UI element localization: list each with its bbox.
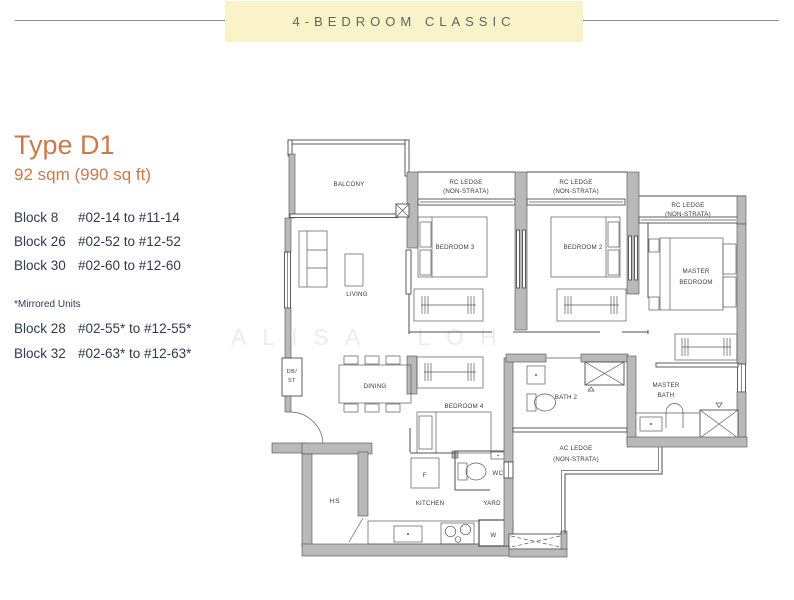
ac-ledge-sublabel: (NON-STRATA) — [553, 456, 599, 463]
bedroom4-label: BEDROOM 4 — [445, 403, 484, 410]
rc-ledge-2: RC LEDGE (NON-STRATA) — [527, 172, 627, 205]
unit-area: 92 sqm (990 sq ft) — [14, 165, 264, 185]
ac-ledge-label: AC LEDGE — [560, 445, 593, 452]
living-area: LIVING — [299, 231, 368, 298]
fridge-label: F — [423, 473, 427, 479]
header-rule-left — [15, 20, 225, 21]
block-name: Block 8 — [14, 206, 78, 230]
block-name: Block 28 — [14, 316, 78, 341]
bedroom2-label: BEDROOM 2 — [564, 244, 603, 251]
wc-room: WC — [452, 451, 507, 490]
toilet-icon — [458, 463, 486, 480]
block-row: Block 32 #02-63* to #12-63* — [14, 341, 264, 366]
mirrored-block-list: Block 28 #02-55* to #12-55* Block 32 #02… — [14, 316, 264, 366]
column-bed2-master — [627, 172, 639, 294]
block-row: Block 8 #02-14 to #11-14 — [14, 206, 264, 230]
unit-type-title: Type D1 — [14, 130, 264, 160]
block-range: #02-55* to #12-55* — [78, 316, 191, 341]
west-wall-entry: DB/ ST — [272, 218, 323, 453]
block-range: #02-60 to #12-60 — [78, 254, 181, 278]
master-bedroom-label: MASTER — [683, 268, 710, 275]
ac-unit-icon — [396, 204, 409, 217]
wardrobe-icon — [557, 289, 626, 321]
block-range: #02-63* to #12-63* — [78, 341, 191, 366]
balcony-room: BALCONY — [288, 140, 418, 248]
rc-ledge-label: RC LEDGE — [449, 179, 482, 186]
block-range: #02-52 to #12-52 — [78, 230, 181, 254]
unit-type-banner: 4-BEDROOM CLASSIC — [225, 1, 583, 42]
block-range: #02-14 to #11-14 — [78, 206, 180, 230]
living-label: LIVING — [346, 291, 368, 298]
balcony-label: BALCONY — [334, 181, 365, 188]
yard-label: YARD — [483, 500, 501, 507]
rc-ledge-sublabel: (NON-STRATA) — [553, 188, 599, 195]
floor-plan: BALCONY RC LEDGE (NON-STRATA) RC LEDGE (… — [270, 128, 760, 570]
sofa-icon — [299, 231, 327, 287]
washer-icon: W — [479, 520, 508, 546]
household-shelter: HS — [302, 443, 372, 548]
ac-ledge: AC LEDGE (NON-STRATA) — [553, 441, 662, 534]
wardrobe-icon — [417, 357, 483, 388]
east-wall — [737, 224, 746, 440]
rc-ledge-sublabel: (NON-STRATA) — [443, 188, 489, 195]
washer-label: W — [490, 533, 496, 539]
toilet-icon — [527, 394, 556, 411]
master-bath-room: MASTER BATH — [627, 363, 747, 447]
bedroom4-room: BEDROOM 4 — [407, 356, 491, 453]
block-name: Block 26 — [14, 230, 78, 254]
rc-ledge-sublabel: (NON-STRATA) — [665, 211, 711, 218]
basin-icon — [527, 366, 545, 384]
db-label: DB/ — [287, 369, 298, 375]
wardrobe-icon — [414, 289, 483, 321]
hs-label: HS — [330, 498, 340, 505]
rc-ledge-label: RC LEDGE — [559, 179, 592, 186]
basin-icon — [640, 417, 662, 431]
shower-icon — [585, 362, 624, 391]
rc-ledge-1: RC LEDGE (NON-STRATA) — [418, 172, 515, 205]
toilet-icon — [666, 404, 683, 429]
kitchen-label: KITCHEN — [416, 500, 445, 507]
entry-door-arc — [290, 412, 323, 445]
block-name: Block 30 — [14, 254, 78, 278]
bath2-room: BATH 2 — [506, 354, 636, 442]
hs-door — [349, 518, 363, 542]
block-row: Block 30 #02-60 to #12-60 — [14, 254, 264, 278]
banner-title: 4-BEDROOM CLASSIC — [293, 14, 516, 29]
bath2-label: BATH 2 — [555, 394, 578, 401]
louvre-vent-icon — [509, 534, 562, 549]
stove-icon — [441, 523, 474, 544]
master-bath-label: MASTER — [653, 382, 680, 389]
master-bedroom-room: MASTER BEDROOM — [648, 223, 737, 360]
sink-icon — [394, 526, 422, 542]
kitchen-area: W F KITCHEN YARD — [368, 458, 513, 546]
unit-info-panel: Type D1 92 sqm (990 sq ft) Block 8 #02-1… — [14, 130, 264, 366]
tv-console-icon — [345, 254, 363, 286]
block-name: Block 32 — [14, 341, 78, 366]
bedroom3-label: BEDROOM 3 — [436, 244, 475, 251]
block-row: Block 26 #02-52 to #12-52 — [14, 230, 264, 254]
block-list: Block 8 #02-14 to #11-14 Block 26 #02-52… — [14, 206, 264, 278]
master-bedroom-sublabel: BEDROOM — [679, 279, 712, 286]
db-st-closet — [282, 358, 302, 396]
master-bath-sublabel: BATH — [658, 392, 675, 399]
header-rule-right — [583, 20, 779, 21]
shower-icon — [700, 403, 738, 438]
wardrobe-icon — [675, 334, 737, 360]
floorplan-page: { "banner": { "title": "4-BEDROOM CLASSI… — [0, 0, 794, 600]
bedroom3-room: BEDROOM 3 — [406, 217, 492, 334]
column-bed3-bed2 — [515, 172, 527, 330]
dining-label: DINING — [364, 383, 387, 390]
block-row: Block 28 #02-55* to #12-55* — [14, 316, 264, 341]
rc-ledge-3: RC LEDGE (NON-STRATA) — [639, 196, 746, 224]
bed-icon — [417, 412, 491, 453]
mirrored-units-note: *Mirrored Units — [14, 298, 264, 312]
rc-ledge-label: RC LEDGE — [671, 202, 704, 209]
dining-area: DINING — [339, 356, 411, 412]
wc-label: WC — [493, 471, 504, 477]
st-label: ST — [288, 378, 296, 384]
fridge-icon: F — [411, 458, 439, 488]
